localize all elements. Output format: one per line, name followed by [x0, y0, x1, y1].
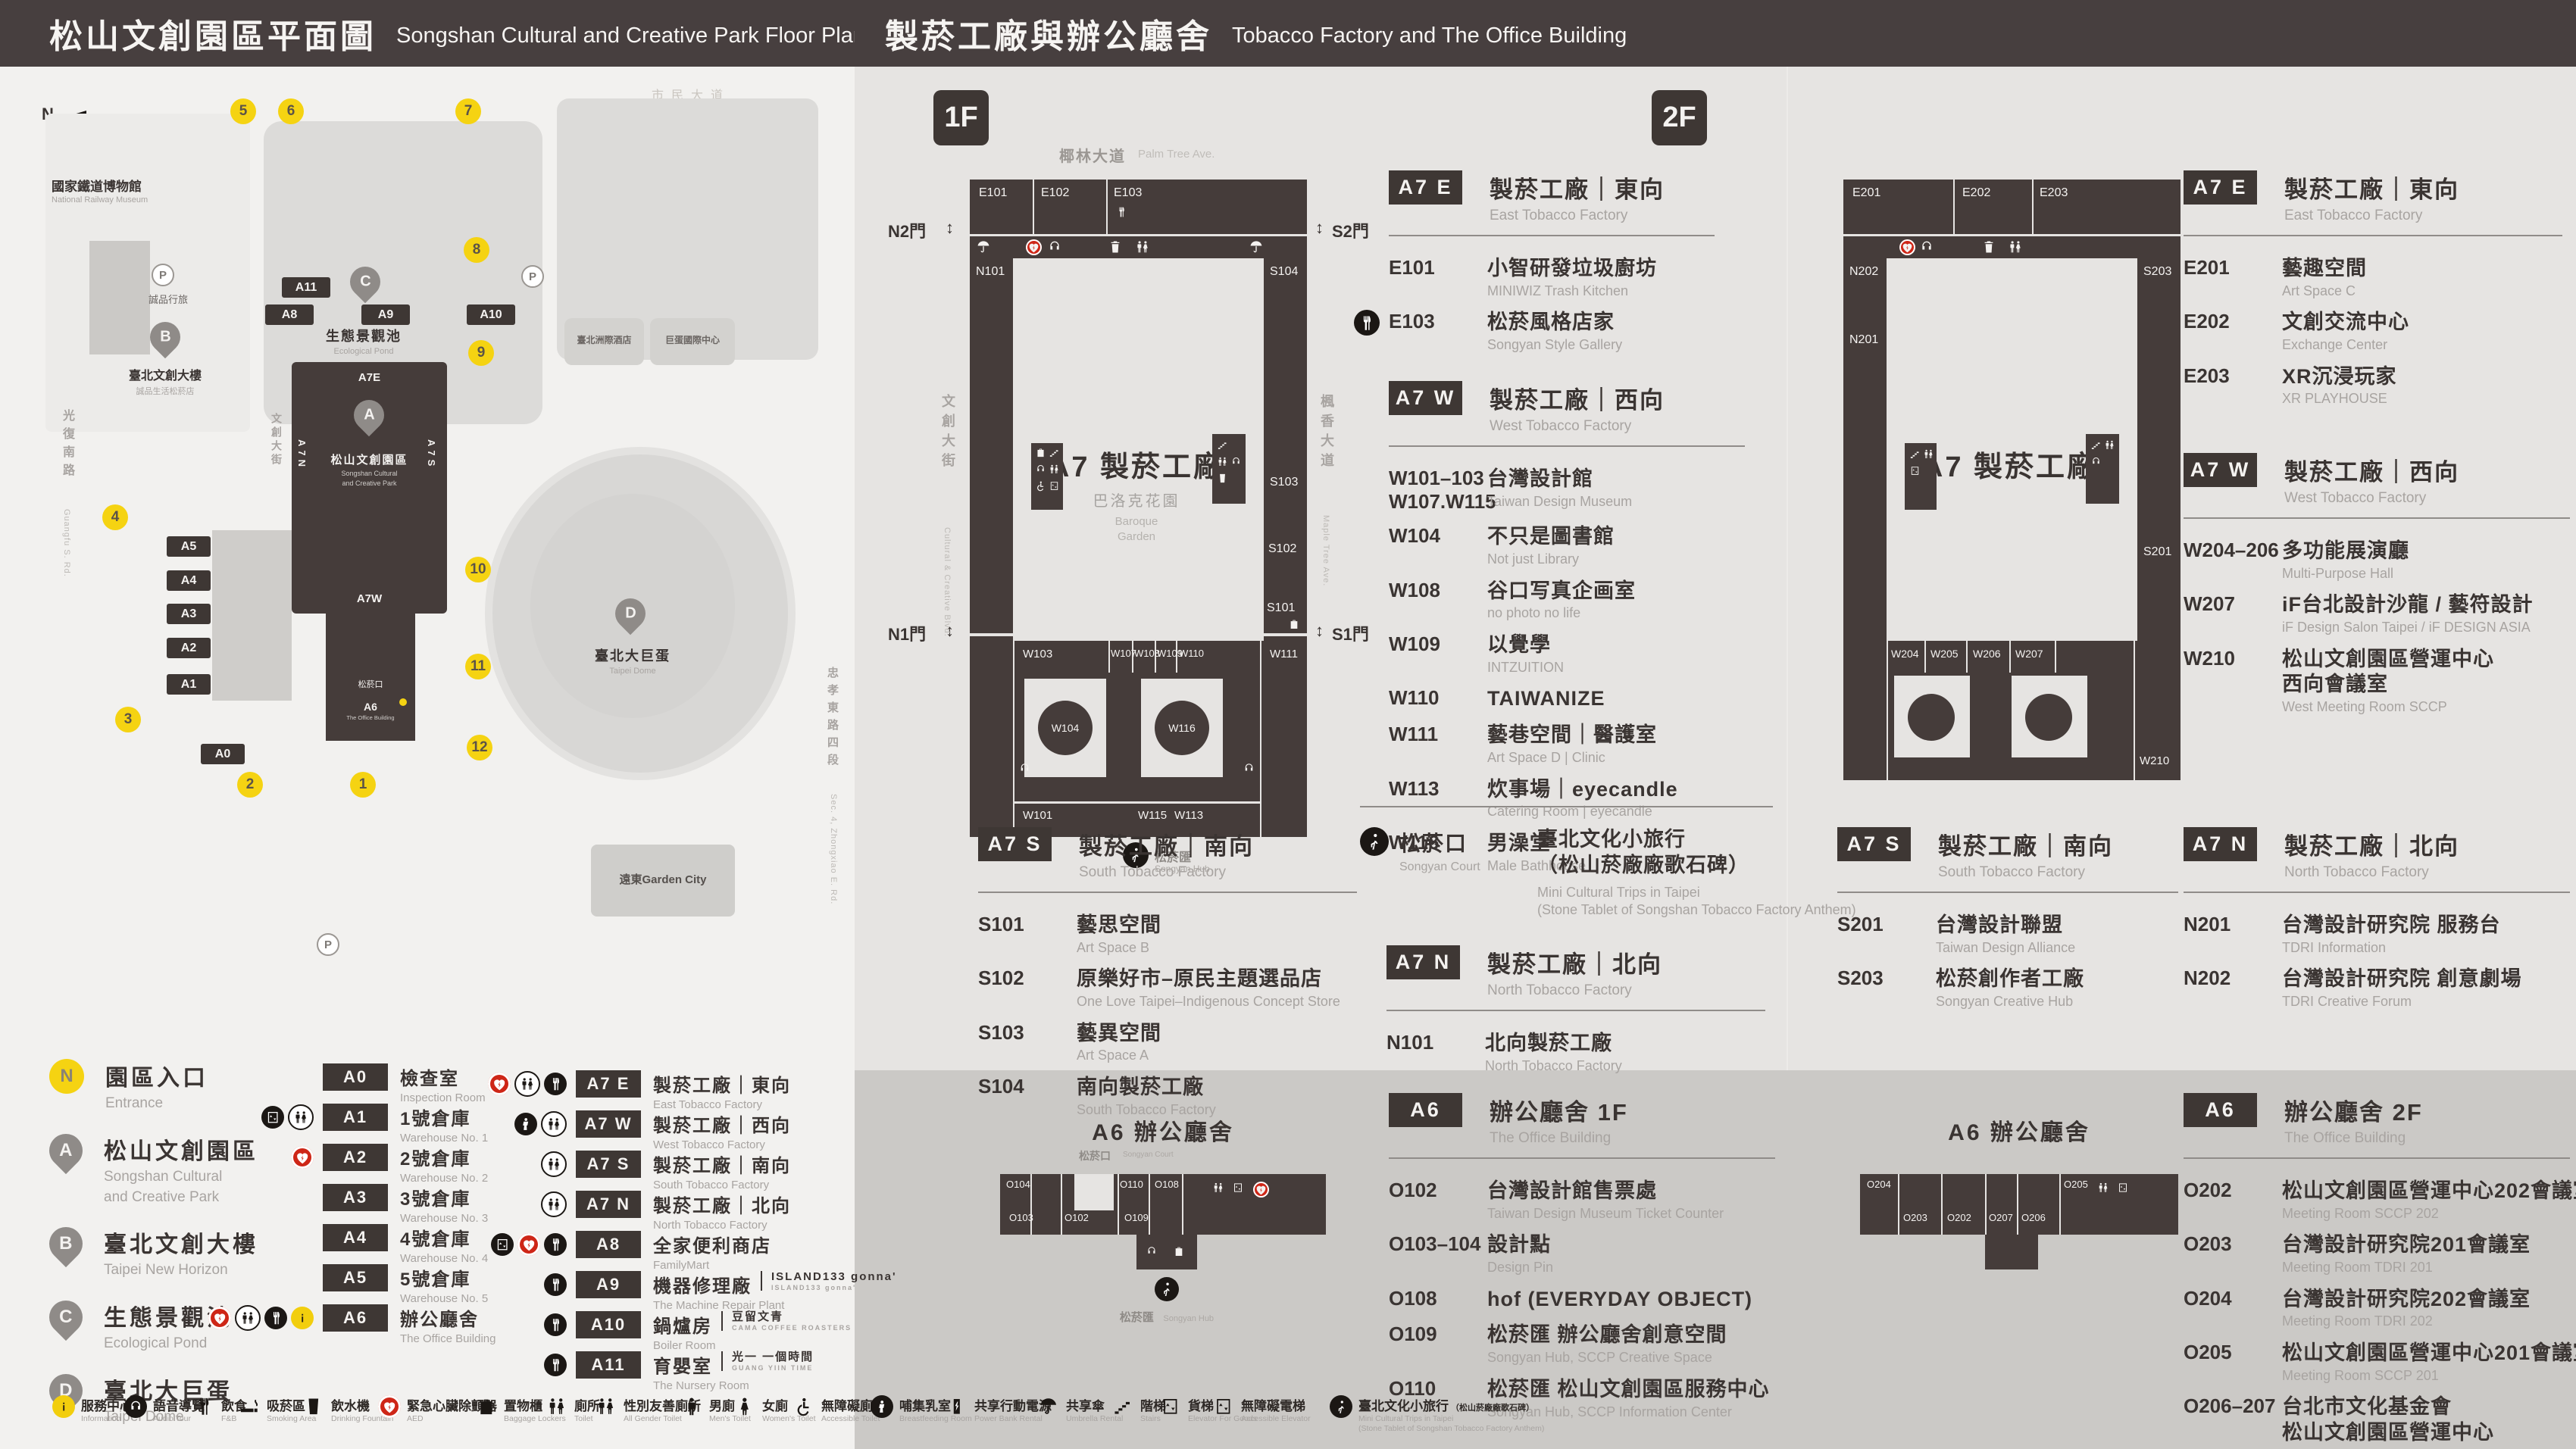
- section-a7-n: A7 N製菸工廠｜北向North Tobacco FactoryN201台灣設計…: [2184, 827, 2570, 1021]
- gate-n1: N1門: [888, 621, 926, 645]
- room-label: E201: [1852, 186, 1880, 200]
- room-row: W108谷口写真企画室no photo no life: [1389, 579, 1745, 622]
- room-label: S103: [1270, 476, 1298, 489]
- building-badge: A6: [1389, 1093, 1462, 1127]
- walk-icon: [1330, 1395, 1352, 1418]
- dining-icon: [544, 1273, 567, 1296]
- room-label: O204: [1867, 1179, 1891, 1190]
- building-badge: A7 S: [576, 1151, 641, 1178]
- room-label: W116: [1155, 701, 1209, 755]
- plan-line: [1118, 1174, 1119, 1235]
- room-label: W108: [1134, 648, 1160, 659]
- section-songyan-court: 松菸口 Songyan Court 臺北文化小旅行 （松山菸廠廠歌石碑） Min…: [1360, 806, 1773, 919]
- baroque-garden-en1: Baroque: [1013, 515, 1260, 528]
- room-name: 台灣設計研究院201會議室Meeting Room TDRI 201: [2282, 1232, 2531, 1276]
- room-row: W109以覺學INTZUITION: [1389, 632, 1745, 676]
- legend-buildings-col1: A0檢查室Inspection RoomA11號倉庫Warehouse No. …: [229, 1063, 496, 1344]
- a6-2f-building: [1860, 1174, 2178, 1235]
- room-code: O108: [1389, 1287, 1487, 1313]
- a10-tag: A10: [467, 304, 515, 325]
- dining-icon: [544, 1073, 567, 1095]
- court-title-en: Songyan Court: [1399, 860, 1537, 874]
- all-gender-icon: [595, 1395, 617, 1418]
- map-pin-icon: A: [42, 1127, 89, 1174]
- plan-line: [970, 234, 1307, 236]
- umbrella-icon: [1037, 1395, 1060, 1418]
- court-item-en2: (Stone Tablet of Songshan Tobacco Factor…: [1537, 902, 1856, 919]
- men-icon: [680, 1395, 703, 1418]
- building-badge: A1: [323, 1104, 388, 1131]
- room-name: XR沉浸玩家XR PLAYHOUSE: [2282, 364, 2397, 408]
- sccp-map-en2: and Creative Park: [292, 479, 447, 487]
- footer-legend-walk: 臺北文化小旅行（松山菸廠廠歌石碑）Mini Cultural Trips in …: [1330, 1395, 1544, 1434]
- street-maple-en: Maple Tree Ave.: [1321, 515, 1330, 586]
- round-room: [2025, 694, 2072, 741]
- entrance-marker-5: 5: [230, 98, 256, 124]
- room-row: E201藝趣空間Art Space C: [2184, 256, 2562, 299]
- court-item-zh2: （松山菸廠廠歌石碑）: [1537, 853, 1856, 879]
- section-a7-s: A7 S製菸工廠｜南向South Tobacco FactoryS201台灣設計…: [1837, 827, 2178, 1021]
- elevator-icon: [261, 1106, 284, 1129]
- street-zhongxiao-zh: 忠孝東路四段: [824, 667, 840, 771]
- building-badge: A7 W: [2184, 453, 2257, 487]
- footer-legend-acc-lift: 無障礙電梯Accessible Elevator: [1212, 1395, 1311, 1424]
- room-code: E103: [1389, 310, 1487, 353]
- toilet-icon: [2097, 1182, 2109, 1194]
- room-code: W111: [1389, 723, 1487, 766]
- section-a7-n: A7 N製菸工廠｜北向North Tobacco FactoryN101北向製菸…: [1386, 945, 1765, 1085]
- footer-legend-umbrella: 共享傘Umbrella Rental: [1037, 1395, 1123, 1424]
- legend-place-row: B臺北文創大樓Taipei New Horizon: [49, 1226, 258, 1279]
- room-label: E202: [1962, 186, 1990, 200]
- street-guangfu-zh: 光復南路: [58, 409, 76, 482]
- toilet-icon: [2104, 439, 2115, 451]
- round-room: [1908, 694, 1955, 741]
- wheelchair-icon: [792, 1395, 815, 1418]
- room-label: O202: [1947, 1212, 1971, 1223]
- plan-line: [2059, 1174, 2061, 1235]
- room-row: W101–103W107.W115台灣設計館Taiwan Design Muse…: [1389, 467, 1745, 514]
- locker-icon: [475, 1395, 498, 1418]
- a0-tag: A0: [201, 744, 245, 764]
- a7w-map-tag: A7W: [292, 592, 447, 605]
- room-row: W110TAIWANIZE: [1389, 686, 1745, 712]
- locker-icon: [1288, 618, 1300, 630]
- a6-hub-zh: 松菸匯: [1120, 1311, 1154, 1324]
- room-label: E101: [979, 186, 1007, 200]
- elevator-icon: [1909, 465, 1921, 476]
- left-title-zh: 松山文創園區平面圖: [49, 9, 377, 58]
- room-code: W104: [1389, 524, 1487, 567]
- a8-tag: A8: [265, 304, 314, 325]
- room-name: 台灣設計館售票處Taiwan Design Museum Ticket Coun…: [1487, 1179, 1724, 1222]
- plan-line: [1966, 641, 1968, 673]
- entrance-marker-6: 6: [278, 98, 304, 124]
- section-title: 製菸工廠｜北向North Tobacco Factory: [1487, 945, 1662, 999]
- room-label: S104: [1270, 265, 1298, 279]
- room-name: 台灣設計研究院 服務台TDRI Information: [2282, 913, 2501, 956]
- court-item: 臺北文化小旅行 （松山菸廠廠歌石碑） Mini Cultural Trips i…: [1537, 827, 1856, 919]
- parking-icon: P: [317, 933, 339, 956]
- room-name: 松菸風格店家Songyan Style Gallery: [1487, 310, 1622, 353]
- right-header: 製菸工廠與辦公廳舍 Tobacco Factory and The Office…: [855, 0, 2576, 67]
- room-label: W204: [1891, 648, 1919, 660]
- room-name: 松山文創園區營運中心202會議室Meeting Room SCCP 202: [2282, 1179, 2570, 1222]
- floor1-badge: 1F: [933, 90, 989, 145]
- section-title: 製菸工廠｜南向South Tobacco Factory: [1079, 827, 1254, 881]
- locker-icon: [1173, 1245, 1185, 1257]
- a6-court-gap: [1074, 1174, 1114, 1210]
- section-a7-e: A7 E製菸工廠｜東向East Tobacco FactoryE101小智研發垃…: [1389, 170, 1715, 364]
- room-code: O103–104: [1389, 1232, 1487, 1276]
- room-label: W115: [1138, 809, 1167, 822]
- legend-row: A55號倉庫Warehouse No. 5: [229, 1264, 496, 1292]
- a6-office-block: [326, 614, 415, 741]
- floor-plan-poster: 松山文創園區平面圖 Songshan Cultural and Creative…: [0, 0, 2576, 1449]
- room-row: N201台灣設計研究院 服務台TDRI Information: [2184, 913, 2570, 956]
- building-badge: A4: [323, 1224, 388, 1251]
- room-name: TAIWANIZE: [1487, 686, 1605, 712]
- court-title-zh: 松菸口: [1399, 827, 1537, 857]
- footer-legend-info: 服務中心Information: [52, 1395, 133, 1424]
- legend-row: A10鍋爐房豆留文青CAMA COFFEE ROASTERSBoiler Roo…: [474, 1311, 897, 1339]
- locker-icon: [1035, 447, 1046, 458]
- section-a6: A6辦公廳舍 1FThe Office BuildingO102台灣設計館售票處…: [1389, 1093, 1775, 1431]
- room-code: W101–103W107.W115: [1389, 467, 1487, 514]
- room-label: E103: [1114, 186, 1142, 200]
- trash-icon: [1981, 239, 1996, 255]
- room-row: O205松山文創園區營運中心201會議室Meeting Room SCCP 20…: [2184, 1341, 2570, 1384]
- room-row: N202台灣設計研究院 創意劇場TDRI Creative Forum: [2184, 967, 2570, 1010]
- legend-row: A7 S製菸工廠｜南向South Tobacco Factory: [474, 1151, 897, 1179]
- section-a6: A6辦公廳舍 2FThe Office BuildingO202松山文創園區營運…: [2184, 1093, 2570, 1449]
- dining-plain-icon: [192, 1395, 215, 1418]
- room-label: O102: [1064, 1212, 1089, 1223]
- room-label: S203: [2143, 265, 2171, 279]
- room-row: S104南向製菸工廠South Tobacco Factory: [978, 1075, 1357, 1118]
- room-name: 南向製菸工廠South Tobacco Factory: [1077, 1075, 1216, 1118]
- new-horizon-block: [89, 241, 150, 354]
- toilet-icon: [2008, 239, 2023, 255]
- legend-row: A7 W製菸工廠｜西向West Tobacco Factory: [474, 1110, 897, 1138]
- room-name: 松山文創園區營運中心西向會議室West Meeting Room SCCP: [2282, 647, 2494, 716]
- a7n-map-tag: A7N: [296, 439, 308, 470]
- toilet-icon: [1049, 464, 1060, 475]
- legend-places: N園區入口EntranceA松山文創園區Songshan Culturaland…: [49, 1059, 258, 1446]
- toilet-icon: [1217, 456, 1228, 467]
- hotel-label: 臺北洲際酒店: [564, 333, 644, 346]
- a6-2f-stem: [1985, 1235, 2038, 1269]
- plan-line: [1260, 641, 1261, 837]
- stairs-icon: [1909, 448, 1921, 460]
- building-badge: A7 E: [1389, 170, 1462, 205]
- left-title-en: Songshan Cultural and Creative Park Floo…: [396, 23, 865, 48]
- room-row: O202松山文創園區營運中心202會議室Meeting Room SCCP 20…: [2184, 1179, 2570, 1222]
- footer-legend-stairs: 階梯Stairs: [1111, 1395, 1166, 1424]
- legend-row: A22號倉庫Warehouse No. 2: [229, 1144, 496, 1172]
- goods-lift-icon: [1159, 1395, 1182, 1418]
- room-label: O108: [1155, 1179, 1179, 1190]
- warehouse-a1-tag: A1: [167, 674, 211, 695]
- plan-line: [1033, 180, 1034, 234]
- legend-row: A0檢查室Inspection Room: [229, 1063, 496, 1091]
- umbrella-icon: [976, 239, 991, 255]
- warehouse-a4-tag: A4: [167, 570, 211, 591]
- elevator-icon: [2117, 1182, 2129, 1194]
- street-palm-en: Palm Tree Ave.: [1138, 148, 1215, 161]
- section-title: 製菸工廠｜東向East Tobacco Factory: [2284, 170, 2459, 224]
- aed-icon: [1899, 239, 1915, 255]
- legend-row: A7 N製菸工廠｜北向North Tobacco Factory: [474, 1191, 897, 1219]
- room-code: S102: [978, 967, 1077, 1010]
- building-badge: A0: [323, 1063, 388, 1091]
- sccp-map-en1: Songshan Cultural: [292, 470, 447, 477]
- room-code: S203: [1837, 967, 1936, 1010]
- room-label: O109: [1124, 1212, 1149, 1223]
- legend-place-row: A松山文創園區Songshan Culturaland Creative Par…: [49, 1132, 258, 1207]
- toilet-icon: [1135, 239, 1150, 255]
- section-a7-s: A7 S製菸工廠｜南向South Tobacco FactoryS101藝思空間…: [978, 827, 1357, 1129]
- right-title-zh: 製菸工廠與辦公廳舍: [885, 9, 1212, 58]
- footer-legend-power: 共享行動電源Power Bank Rental: [946, 1395, 1052, 1424]
- warehouse-a3-tag: A3: [167, 604, 211, 624]
- room-code: O202: [2184, 1179, 2282, 1222]
- gate-arrows: ↕: [1315, 218, 1324, 238]
- a6-court-zh: 松菸口: [1079, 1148, 1111, 1163]
- room-row: S203松菸創作者工廠Songyan Creative Hub: [1837, 967, 2178, 1010]
- dining-icon: [544, 1313, 567, 1336]
- room-code: N101: [1386, 1031, 1485, 1074]
- nursing-icon: [514, 1113, 537, 1135]
- aed-icon: [208, 1307, 231, 1329]
- walking-person-icon: [1155, 1277, 1179, 1301]
- building-badge: A5: [323, 1264, 388, 1291]
- audio-tour-icon: [1018, 762, 1031, 775]
- room-code: N202: [2184, 967, 2282, 1010]
- room-code: S101: [978, 913, 1077, 956]
- legend-row: A33號倉庫Warehouse No. 3: [229, 1184, 496, 1212]
- room-code: N201: [2184, 913, 2282, 956]
- umbrella-icon: [1249, 239, 1264, 255]
- room-label: O207: [1989, 1212, 2013, 1223]
- info-icon: [291, 1307, 314, 1329]
- gate-s1: S1門: [1332, 621, 1369, 645]
- room-name: 以覺學INTZUITION: [1487, 632, 1564, 676]
- a6-entrance-dot: [399, 698, 407, 706]
- toilet-ring-icon: [288, 1104, 314, 1130]
- a7e-map-tag: A7E: [292, 371, 447, 384]
- plan-line: [1061, 1174, 1062, 1235]
- room-name: 藝異空間Art Space A: [1077, 1021, 1161, 1064]
- room-label: W210: [2140, 754, 2169, 767]
- section-title: 製菸工廠｜西向West Tobacco Factory: [1490, 381, 1665, 435]
- gate-s2: S2門: [1332, 218, 1369, 242]
- parking-icon: P: [521, 265, 544, 288]
- entrance-marker-4: 4: [102, 504, 128, 530]
- floor2-badge: 2F: [1652, 90, 1707, 145]
- gate-arrows: ↕: [1315, 621, 1324, 641]
- room-label: O203: [1903, 1212, 1927, 1223]
- room-name: 北向製菸工廠North Tobacco Factory: [1485, 1031, 1622, 1074]
- room-row: E103松菸風格店家Songyan Style Gallery: [1389, 310, 1715, 353]
- room-name: 不只是圖書館Not just Library: [1487, 524, 1615, 567]
- audio-tour-icon: [1230, 456, 1242, 467]
- aed-icon: [1026, 239, 1042, 255]
- room-name: 台灣設計館Taiwan Design Museum: [1487, 467, 1632, 514]
- room-code: W108: [1389, 579, 1487, 622]
- dining-icon: [1354, 310, 1380, 336]
- elevator-icon: [1049, 480, 1060, 492]
- plan-line: [1013, 801, 1261, 804]
- court-item-en: Mini Cultural Trips in Taipei: [1537, 885, 1856, 901]
- pond-label: 生態景觀池 Ecological Pond: [288, 326, 439, 356]
- building-badge: A7 N: [2184, 827, 2257, 861]
- room-code: W110: [1389, 686, 1487, 712]
- warehouse-a2-tag: A2: [167, 638, 211, 658]
- building-badge: A7 E: [2184, 170, 2257, 205]
- aed-icon: [378, 1395, 401, 1418]
- building-badge: A9: [576, 1271, 641, 1298]
- dining-icon: [1115, 206, 1127, 218]
- a6-2f-plan-title: A6 辦公廳舍: [1860, 1113, 2178, 1147]
- panel-divider: [1787, 67, 1788, 1070]
- room-label: W110: [1179, 648, 1204, 659]
- aed-icon: [488, 1073, 511, 1095]
- room-row: W210松山文創園區營運中心西向會議室West Meeting Room SCC…: [2184, 647, 2570, 716]
- plan-line: [2134, 641, 2135, 780]
- room-name: 藝趣空間Art Space C: [2282, 256, 2367, 299]
- street-ccblvd-en: Cultural & Creative Blvd.: [943, 527, 952, 637]
- room-name: 松山文創園區營運中心201會議室Meeting Room SCCP 201: [2282, 1341, 2570, 1384]
- a11-tag: A11: [282, 277, 330, 298]
- room-code: O109: [1389, 1323, 1487, 1366]
- dome-label: 臺北大巨蛋 Taipei Dome: [557, 645, 708, 676]
- room-row: S103藝異空間Art Space A: [978, 1021, 1357, 1064]
- a9-tag: A9: [361, 304, 410, 325]
- building-badge: A7 W: [576, 1110, 641, 1138]
- section-a7-w: A7 W製菸工廠｜西向West Tobacco FactoryW204–206多…: [2184, 453, 2570, 726]
- parking-icon: P: [152, 264, 174, 286]
- room-code: W204–206: [2184, 539, 2282, 582]
- room-name: 小智研發垃圾廚坊MINIWIZ Trash Kitchen: [1487, 256, 1657, 299]
- room-row: S201台灣設計聯盟Taiwan Design Alliance: [1837, 913, 2178, 956]
- room-label: O103: [1009, 1212, 1033, 1223]
- room-row: O103–104設計點Design Pin: [1389, 1232, 1775, 1276]
- garden-city-label: 遠東Garden City: [591, 871, 735, 887]
- room-row: W204–206多功能展演廳Multi-Purpose Hall: [2184, 539, 2570, 582]
- audio-icon: [124, 1395, 147, 1418]
- nursing-icon: [871, 1395, 893, 1418]
- room-name: 台灣設計聯盟Taiwan Design Alliance: [1936, 913, 2075, 956]
- building-badge: A3: [323, 1184, 388, 1211]
- warehouse-block: [212, 530, 292, 701]
- dome-center-label: 巨蛋國際中心: [650, 333, 735, 346]
- legend-row: A6辦公廳舍The Office Building: [229, 1304, 496, 1332]
- legend-place-row: N園區入口Entrance: [49, 1059, 258, 1113]
- legend-buildings-col2: A7 E製菸工廠｜東向East Tobacco FactoryA7 W製菸工廠｜…: [474, 1070, 897, 1391]
- a6-hub-en: Songyan Hub: [1163, 1314, 1214, 1323]
- plan-line: [1106, 180, 1108, 234]
- cc-blvd-map-label: 文創大街: [269, 413, 284, 467]
- building-badge: A7 N: [1386, 945, 1460, 979]
- legend-row: A8全家便利商店FamilyMart: [474, 1231, 897, 1259]
- gate-arrows: ↕: [946, 218, 954, 238]
- trash-icon: [1108, 239, 1123, 255]
- room-label: E203: [2040, 186, 2068, 200]
- plan-line: [1843, 234, 2181, 236]
- room-row: O203台灣設計研究院201會議室Meeting Room TDRI 201: [2184, 1232, 2570, 1276]
- a6-court-en: Songyan Court: [1123, 1151, 1174, 1159]
- dining-icon: [264, 1307, 287, 1329]
- plan-line: [1182, 1174, 1183, 1235]
- stairs-icon: [1049, 447, 1060, 458]
- accessible-icon: [1035, 480, 1046, 492]
- section-a7-e: A7 E製菸工廠｜東向East Tobacco FactoryE201藝趣空間A…: [2184, 170, 2562, 418]
- legend-row: A11號倉庫Warehouse No. 1: [229, 1104, 496, 1132]
- toilet-icon: [546, 1395, 568, 1418]
- plan-line: [1013, 641, 1014, 837]
- entrance-marker-8: 8: [464, 237, 489, 263]
- room-code: S104: [978, 1075, 1077, 1118]
- info-icon: [52, 1395, 75, 1418]
- plan-line: [2017, 1174, 2018, 1235]
- fountain-icon: [302, 1395, 325, 1418]
- room-code: W210: [2184, 647, 2282, 716]
- songyan-court-map-label: 松菸口: [326, 678, 415, 690]
- plan-line: [1985, 1174, 1987, 1235]
- left-header: 松山文創園區平面圖 Songshan Cultural and Creative…: [0, 0, 904, 67]
- fountain-icon: [1217, 473, 1228, 484]
- toilet-icon: [1212, 1182, 1224, 1194]
- power-icon: [946, 1395, 968, 1418]
- plan-line: [1898, 1174, 1899, 1235]
- room-name: 台灣設計研究院202會議室Meeting Room TDRI 202: [2282, 1287, 2531, 1330]
- plan-line: [970, 633, 1013, 636]
- room-row: O108hof (EVERYDAY OBJECT): [1389, 1287, 1775, 1313]
- room-label: W101: [1023, 809, 1052, 822]
- room-label: N202: [1849, 265, 1878, 279]
- room-name: 台灣設計研究院 創意劇場TDRI Creative Forum: [2282, 967, 2522, 1010]
- dining-icon: [544, 1233, 567, 1256]
- dining-icon: [544, 1354, 567, 1376]
- room-code: W109: [1389, 632, 1487, 676]
- room-label: W111: [1270, 648, 1298, 660]
- plan-line: [1030, 1174, 1032, 1235]
- room-row: E203XR沉浸玩家XR PLAYHOUSE: [2184, 364, 2562, 408]
- entrance-marker-9: 9: [468, 340, 494, 366]
- room-label: O104: [1006, 1179, 1030, 1190]
- gate-n2: N2門: [888, 218, 926, 242]
- room-code: O206–207: [2184, 1394, 2282, 1449]
- baroque-garden-en2: Garden: [1013, 530, 1260, 543]
- street-palm-zh: 椰林大道: [1059, 144, 1126, 166]
- room-code: E203: [2184, 364, 2282, 408]
- room-name: 谷口写真企画室no photo no life: [1487, 579, 1636, 622]
- building-badge: A7 N: [576, 1191, 641, 1218]
- room-label: W206: [1973, 648, 2001, 660]
- stairs-icon: [1217, 439, 1228, 451]
- room-row: E101小智研發垃圾廚坊MINIWIZ Trash Kitchen: [1389, 256, 1715, 299]
- section-title: 製菸工廠｜東向East Tobacco Factory: [1490, 170, 1665, 224]
- legend-row: A9機器修理廠ISLAND133 gonna'ISLAND133 gonna'T…: [474, 1271, 897, 1299]
- room-name: 原樂好市–原民主題選品店One Love Taipei–Indigenous C…: [1077, 967, 1340, 1010]
- entrance-marker-12: 12: [467, 735, 492, 760]
- new-horizon-label: 臺北文創大樓 誠品生活松菸店: [89, 365, 241, 397]
- section-title: 辦公廳舍 1FThe Office Building: [1490, 1093, 1628, 1147]
- section-title: 辦公廳舍 2FThe Office Building: [2284, 1093, 2423, 1147]
- street-zhongxiao-en: Sec. 4, Zhongxiao E. Rd.: [829, 794, 838, 904]
- a6-map-en: The Office Building: [326, 714, 415, 721]
